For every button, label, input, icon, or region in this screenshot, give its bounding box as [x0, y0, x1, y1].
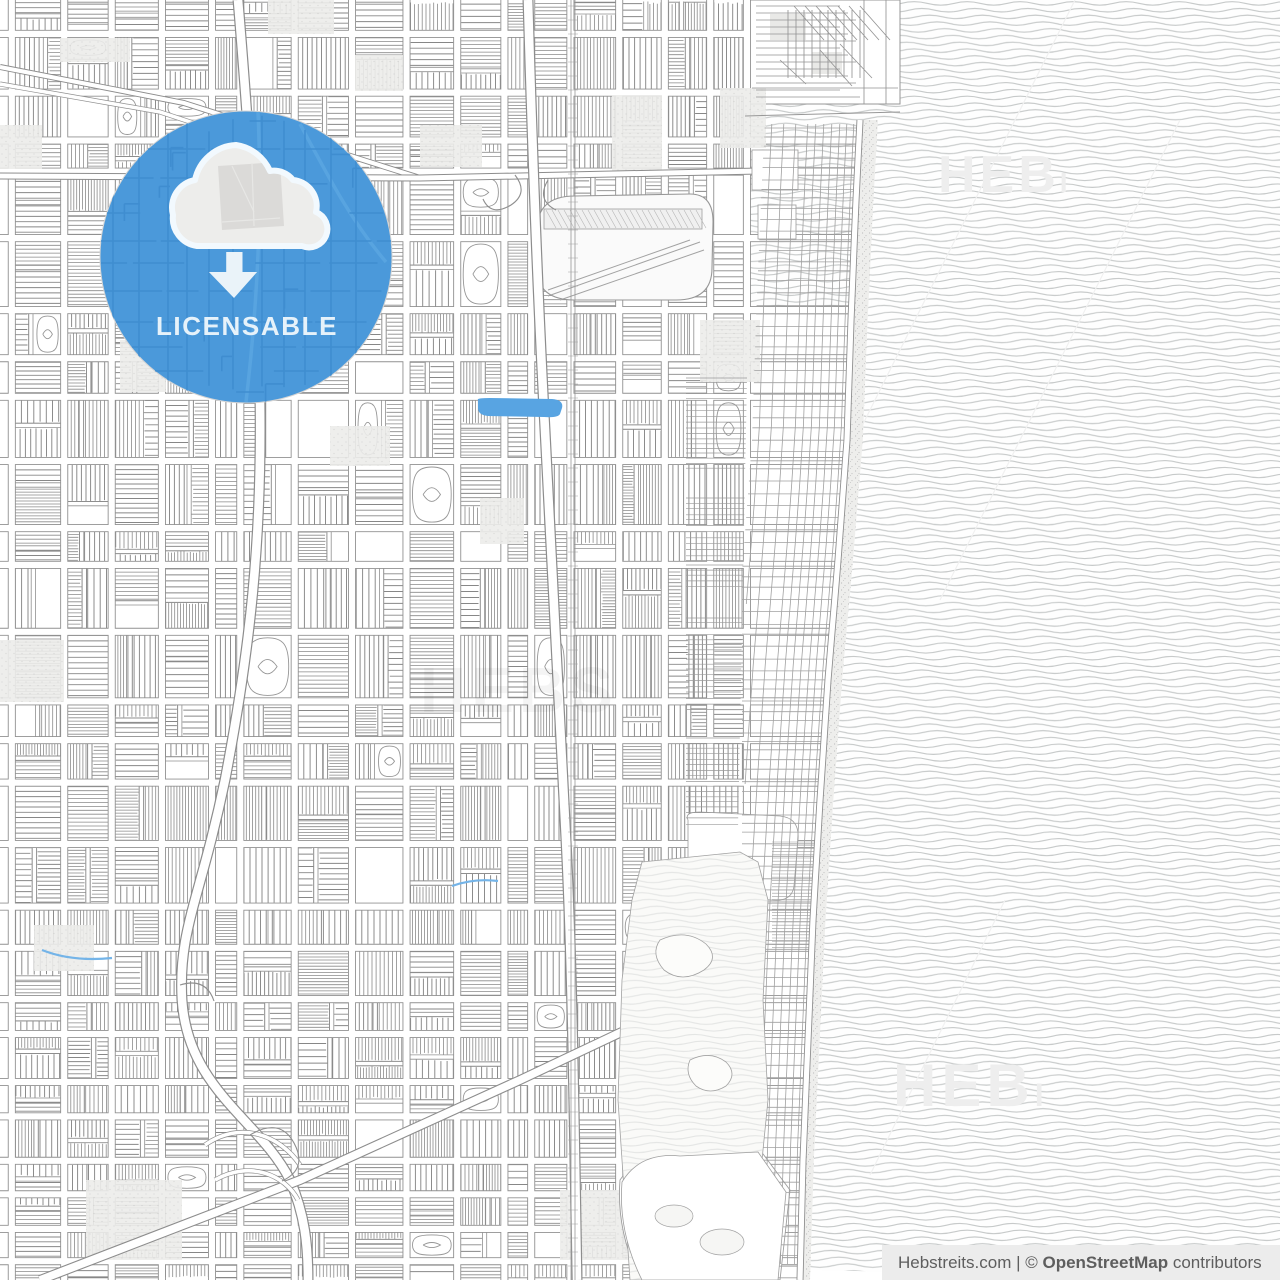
- svg-text:LICENSABLE: LICENSABLE: [156, 311, 338, 341]
- svg-text:HEBI: HEBI: [893, 1052, 1049, 1119]
- svg-text:HEBI: HEBI: [938, 146, 1072, 204]
- svg-text:Hebstreits.com | © OpenStreetM: Hebstreits.com | © OpenStreetMap contrib…: [898, 1253, 1262, 1272]
- svg-text:HEBS: HEBS: [420, 654, 618, 726]
